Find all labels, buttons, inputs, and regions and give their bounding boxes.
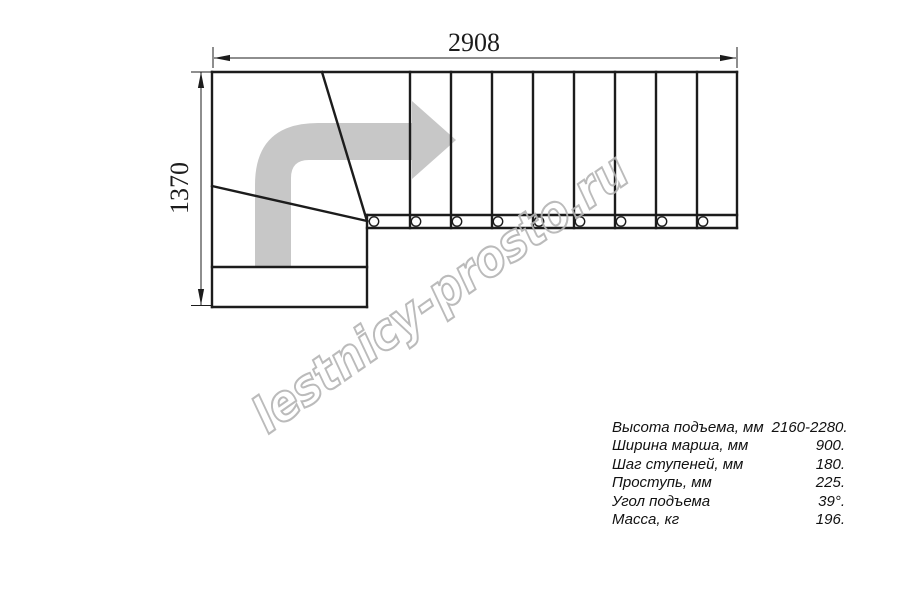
width-dimension-value: 2908	[448, 28, 500, 57]
baluster-hole	[452, 217, 461, 226]
spec-row: Масса, кг 196.	[612, 511, 845, 529]
spec-value: 225.	[816, 474, 845, 492]
staircase-drawing-page: 2908 1370 lestnicy-prosto.ru Высота подъ…	[0, 0, 900, 600]
height-dimension-value: 1370	[165, 162, 194, 214]
spec-row: Шаг ступеней, мм 180.	[612, 456, 845, 474]
dimension-arrowhead-left	[214, 55, 230, 61]
dimension-arrowhead-top	[198, 72, 204, 88]
height-dimension: 1370	[165, 72, 213, 306]
specs-table: Высота подъема, мм 2160-2280. Ширина мар…	[612, 419, 845, 529]
spec-value: 39°.	[818, 493, 845, 511]
spec-row: Ширина марша, мм 900.	[612, 437, 845, 455]
spec-label: Высота подъема, мм	[612, 419, 764, 437]
spec-label: Проступь, мм	[612, 474, 712, 492]
baluster-hole	[698, 217, 707, 226]
spec-value: 196.	[816, 511, 845, 529]
baluster-hole	[411, 217, 420, 226]
watermark-text: lestnicy-prosto.ru	[241, 142, 639, 445]
spec-row: Высота подъема, мм 2160-2280.	[612, 419, 845, 437]
spec-label: Ширина марша, мм	[612, 437, 748, 455]
baluster-hole	[369, 217, 378, 226]
spec-label: Масса, кг	[612, 511, 679, 529]
spec-label: Угол подъема	[612, 493, 710, 511]
dimension-arrowhead-bottom	[198, 289, 204, 305]
spec-value: 2160-2280.	[772, 419, 848, 437]
spec-row: Угол подъема 39°.	[612, 493, 845, 511]
spec-value: 180.	[816, 456, 845, 474]
spec-label: Шаг ступеней, мм	[612, 456, 743, 474]
baluster-hole	[616, 217, 625, 226]
baluster-hole	[657, 217, 666, 226]
spec-value: 900.	[816, 437, 845, 455]
dimension-arrowhead-right	[720, 55, 736, 61]
width-dimension: 2908	[213, 28, 737, 68]
spec-row: Проступь, мм 225.	[612, 474, 845, 492]
